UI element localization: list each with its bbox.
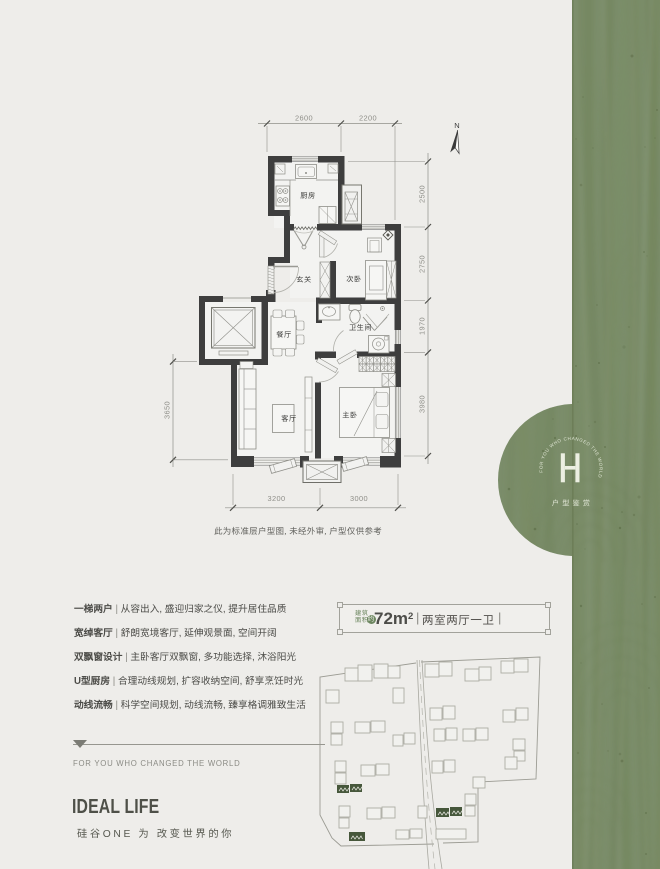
svg-text:此为标准层户型图, 未经外审, 户型仅供参考: 此为标准层户型图, 未经外审, 户型仅供参考 (214, 525, 382, 537)
svg-text:1970: 1970 (418, 317, 427, 335)
svg-text:户型鉴赏: 户型鉴赏 (552, 499, 593, 509)
svg-text:2600: 2600 (295, 114, 313, 123)
svg-text:N: N (454, 121, 459, 130)
svg-text:2200: 2200 (359, 114, 377, 123)
svg-text:3200: 3200 (267, 494, 285, 503)
svg-text:玄关: 玄关 (296, 275, 311, 285)
svg-text:3000: 3000 (350, 494, 368, 503)
svg-text:2750: 2750 (418, 255, 427, 273)
svg-text:客厅: 客厅 (281, 414, 296, 424)
svg-text:餐厅: 餐厅 (276, 330, 291, 340)
svg-text:2500: 2500 (418, 185, 427, 203)
svg-text:主卧: 主卧 (342, 411, 357, 421)
svg-text:3980: 3980 (418, 395, 427, 413)
svg-text:厨房: 厨房 (300, 191, 315, 201)
svg-text:3650: 3650 (163, 401, 172, 419)
svg-text:卫生间: 卫生间 (349, 323, 372, 333)
svg-text:次卧: 次卧 (346, 275, 361, 285)
